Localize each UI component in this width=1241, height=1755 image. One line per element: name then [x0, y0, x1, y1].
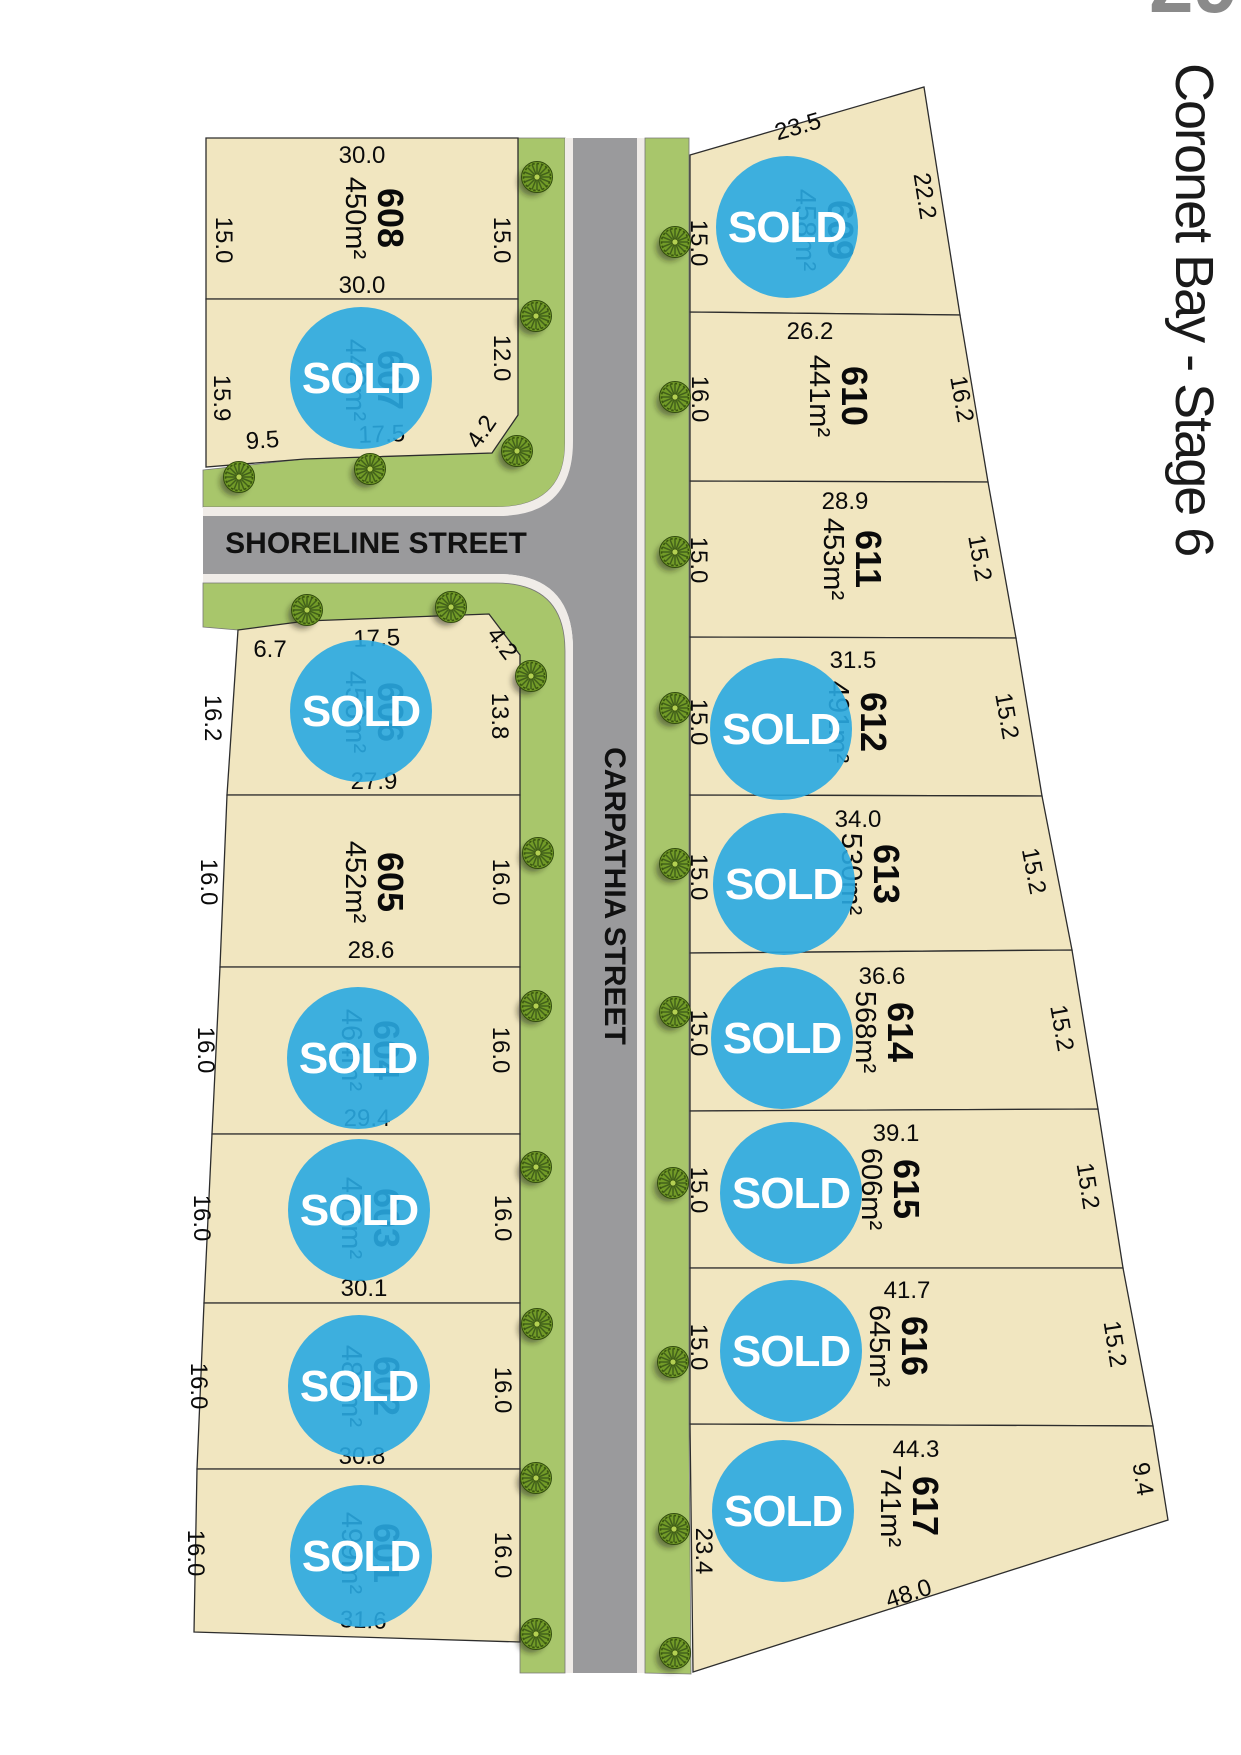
- svg-text:SOLD: SOLD: [728, 203, 846, 252]
- svg-text:41.7: 41.7: [884, 1277, 931, 1304]
- svg-text:SOLD: SOLD: [300, 1362, 418, 1411]
- svg-text:15.0: 15.0: [488, 217, 515, 264]
- svg-text:613: 613: [866, 844, 907, 904]
- svg-text:9.4: 9.4: [1127, 1460, 1159, 1497]
- svg-text:SOLD: SOLD: [724, 1487, 842, 1536]
- svg-text:15.0: 15.0: [685, 699, 712, 746]
- svg-text:12.0: 12.0: [488, 335, 515, 382]
- svg-text:28.6: 28.6: [348, 937, 395, 964]
- svg-text:611: 611: [848, 530, 889, 588]
- svg-text:9.5: 9.5: [245, 426, 280, 455]
- svg-text:452m²: 452m²: [339, 841, 371, 924]
- svg-text:453m²: 453m²: [817, 518, 849, 601]
- svg-text:SOLD: SOLD: [299, 1034, 417, 1083]
- svg-text:450m²: 450m²: [339, 177, 371, 260]
- svg-text:SOLD: SOLD: [732, 1169, 850, 1218]
- svg-text:29: 29: [1149, 0, 1238, 29]
- svg-text:615: 615: [886, 1159, 927, 1219]
- svg-text:23.4: 23.4: [690, 1528, 717, 1575]
- svg-text:44.3: 44.3: [893, 1436, 940, 1463]
- svg-text:16.0: 16.0: [489, 1367, 516, 1414]
- svg-text:15.0: 15.0: [685, 220, 712, 267]
- svg-text:612: 612: [853, 692, 894, 752]
- svg-text:SOLD: SOLD: [302, 354, 420, 403]
- svg-text:SOLD: SOLD: [723, 1014, 841, 1063]
- svg-text:15.0: 15.0: [685, 1167, 712, 1214]
- svg-text:441m²: 441m²: [803, 355, 835, 438]
- svg-text:616: 616: [894, 1316, 935, 1376]
- svg-text:SOLD: SOLD: [732, 1327, 850, 1376]
- svg-text:36.6: 36.6: [859, 963, 906, 990]
- svg-text:568m²: 568m²: [849, 991, 881, 1074]
- svg-text:34.0: 34.0: [835, 806, 882, 833]
- svg-text:741m²: 741m²: [874, 1465, 906, 1548]
- svg-text:16.0: 16.0: [489, 1532, 516, 1579]
- svg-text:13.8: 13.8: [486, 693, 513, 740]
- svg-text:16.0: 16.0: [185, 1363, 212, 1410]
- svg-text:610: 610: [834, 366, 875, 426]
- svg-text:16.0: 16.0: [487, 859, 514, 906]
- svg-text:SOLD: SOLD: [302, 687, 420, 736]
- svg-text:16.2: 16.2: [199, 695, 226, 742]
- svg-text:15.0: 15.0: [685, 1010, 712, 1057]
- svg-text:16.0: 16.0: [182, 1530, 209, 1577]
- svg-text:SOLD: SOLD: [302, 1532, 420, 1581]
- svg-text:SOLD: SOLD: [725, 860, 843, 909]
- svg-text:15.9: 15.9: [208, 375, 235, 422]
- svg-text:16.0: 16.0: [192, 1027, 219, 1074]
- svg-text:16.0: 16.0: [686, 376, 713, 423]
- svg-text:16.0: 16.0: [188, 1195, 215, 1242]
- svg-text:16.0: 16.0: [195, 859, 222, 906]
- svg-text:26.2: 26.2: [787, 318, 834, 345]
- svg-text:15.0: 15.0: [685, 854, 712, 901]
- svg-text:15.0: 15.0: [685, 537, 712, 584]
- svg-text:645m²: 645m²: [863, 1305, 895, 1388]
- svg-text:608: 608: [370, 188, 411, 248]
- svg-text:15.0: 15.0: [685, 1324, 712, 1371]
- svg-text:31.5: 31.5: [830, 647, 877, 674]
- svg-text:SOLD: SOLD: [722, 705, 840, 754]
- svg-text:617: 617: [905, 1476, 946, 1536]
- svg-text:605: 605: [370, 852, 411, 912]
- svg-text:614: 614: [880, 1002, 921, 1062]
- svg-text:SHORELINE STREET: SHORELINE STREET: [225, 527, 527, 560]
- svg-text:15.0: 15.0: [210, 217, 237, 264]
- svg-text:16.0: 16.0: [487, 1027, 514, 1074]
- svg-text:30.0: 30.0: [339, 272, 386, 299]
- svg-text:6.7: 6.7: [253, 636, 286, 663]
- svg-text:CARPATHIA STREET: CARPATHIA STREET: [598, 747, 631, 1045]
- svg-text:39.1: 39.1: [873, 1120, 920, 1147]
- svg-text:SOLD: SOLD: [300, 1186, 418, 1235]
- svg-text:Coronet Bay - Stage 6: Coronet Bay - Stage 6: [1164, 63, 1224, 555]
- svg-text:30.0: 30.0: [339, 142, 386, 169]
- svg-text:16.0: 16.0: [489, 1195, 516, 1242]
- svg-text:28.9: 28.9: [822, 488, 869, 515]
